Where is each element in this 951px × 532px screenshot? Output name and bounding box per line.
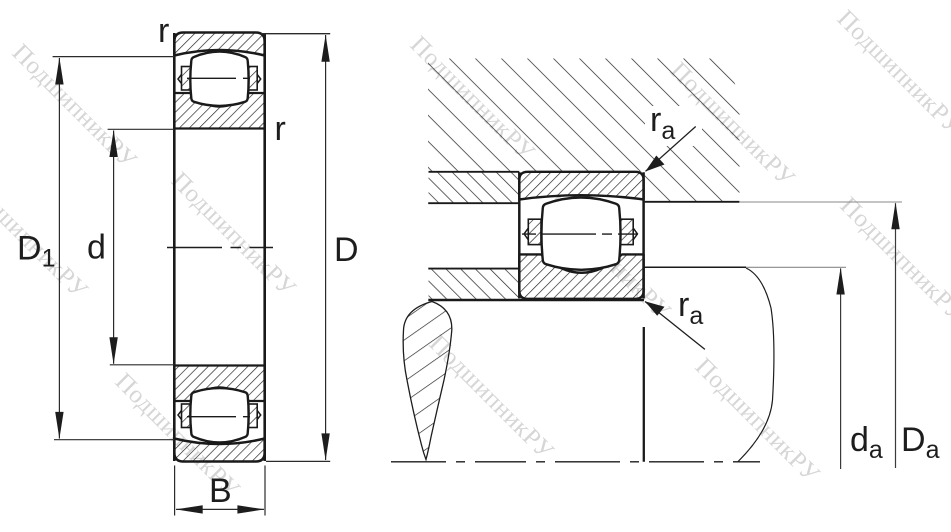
svg-text:ra: ra (678, 286, 703, 330)
svg-text:r: r (275, 110, 286, 148)
svg-text:ПодшипникРУ: ПодшипникРУ (835, 192, 951, 327)
svg-text:ПодшипникРУ: ПодшипникРУ (7, 39, 142, 174)
svg-text:D: D (334, 231, 359, 269)
svg-text:D1: D1 (17, 230, 55, 273)
svg-text:ПодшипникРУ: ПодшипникРУ (832, 5, 951, 140)
svg-text:ПодшипникРУ: ПодшипникРУ (690, 353, 825, 488)
svg-text:ПодшипникРУ: ПодшипникРУ (0, 169, 93, 304)
svg-text:d: d (87, 229, 106, 267)
svg-text:r: r (158, 12, 169, 50)
svg-text:Da: Da (901, 421, 940, 464)
svg-text:ПодшипникРУ: ПодшипникРУ (166, 167, 301, 302)
svg-text:da: da (850, 421, 883, 464)
svg-text:B: B (209, 472, 232, 510)
